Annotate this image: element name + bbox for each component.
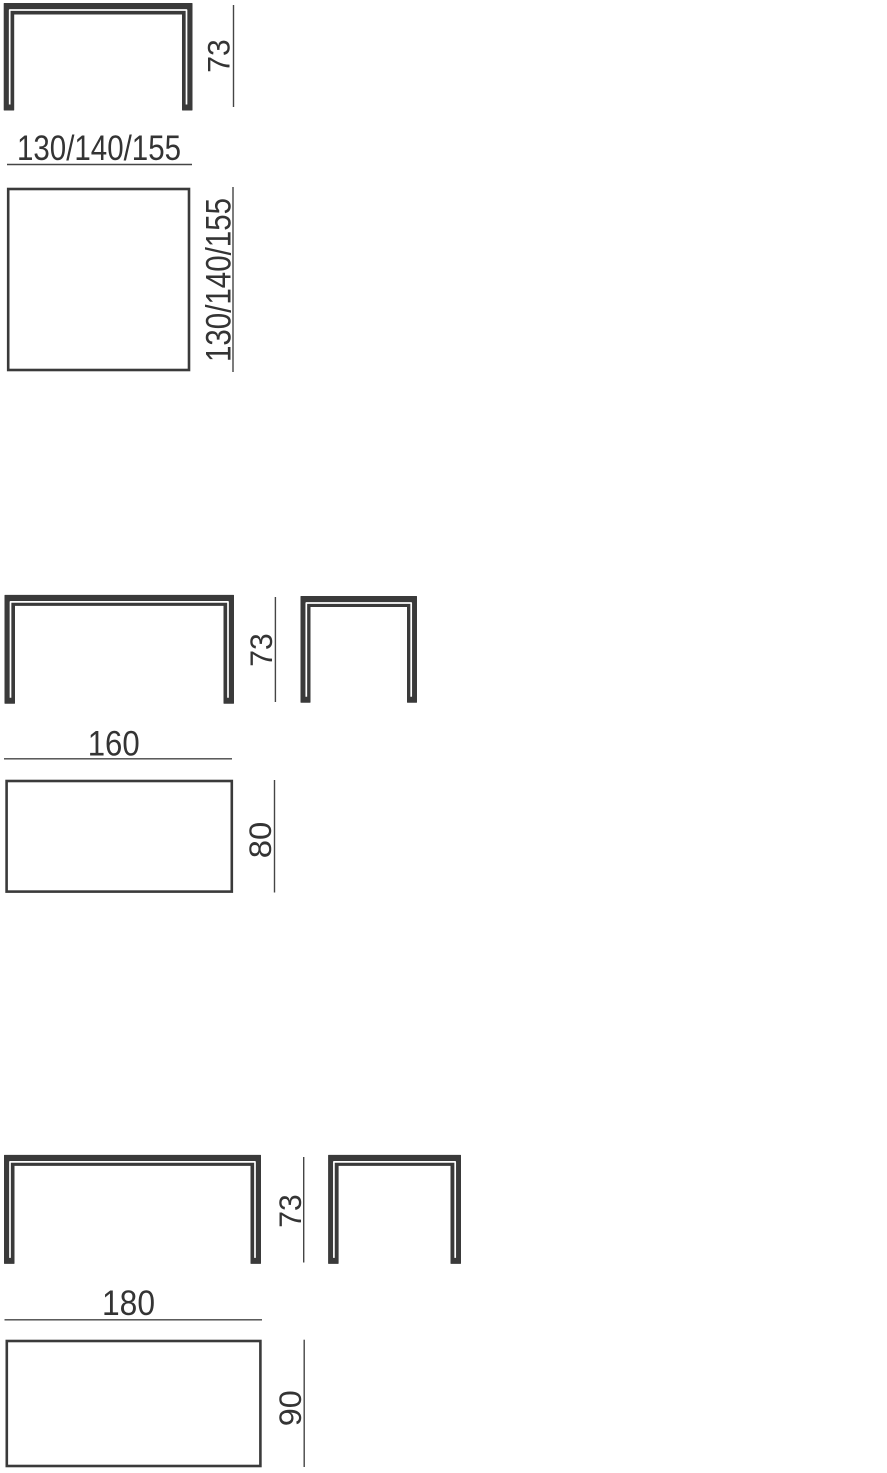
svg-text:130/140/155: 130/140/155 [200, 198, 239, 362]
svg-text:160: 160 [88, 725, 140, 764]
svg-text:180: 180 [102, 1284, 155, 1323]
svg-text:80: 80 [242, 822, 278, 859]
svg-text:73: 73 [201, 39, 237, 73]
svg-text:130/140/155: 130/140/155 [17, 129, 181, 168]
svg-text:73: 73 [243, 633, 279, 667]
svg-text:90: 90 [272, 1390, 308, 1426]
svg-text:73: 73 [272, 1194, 308, 1228]
